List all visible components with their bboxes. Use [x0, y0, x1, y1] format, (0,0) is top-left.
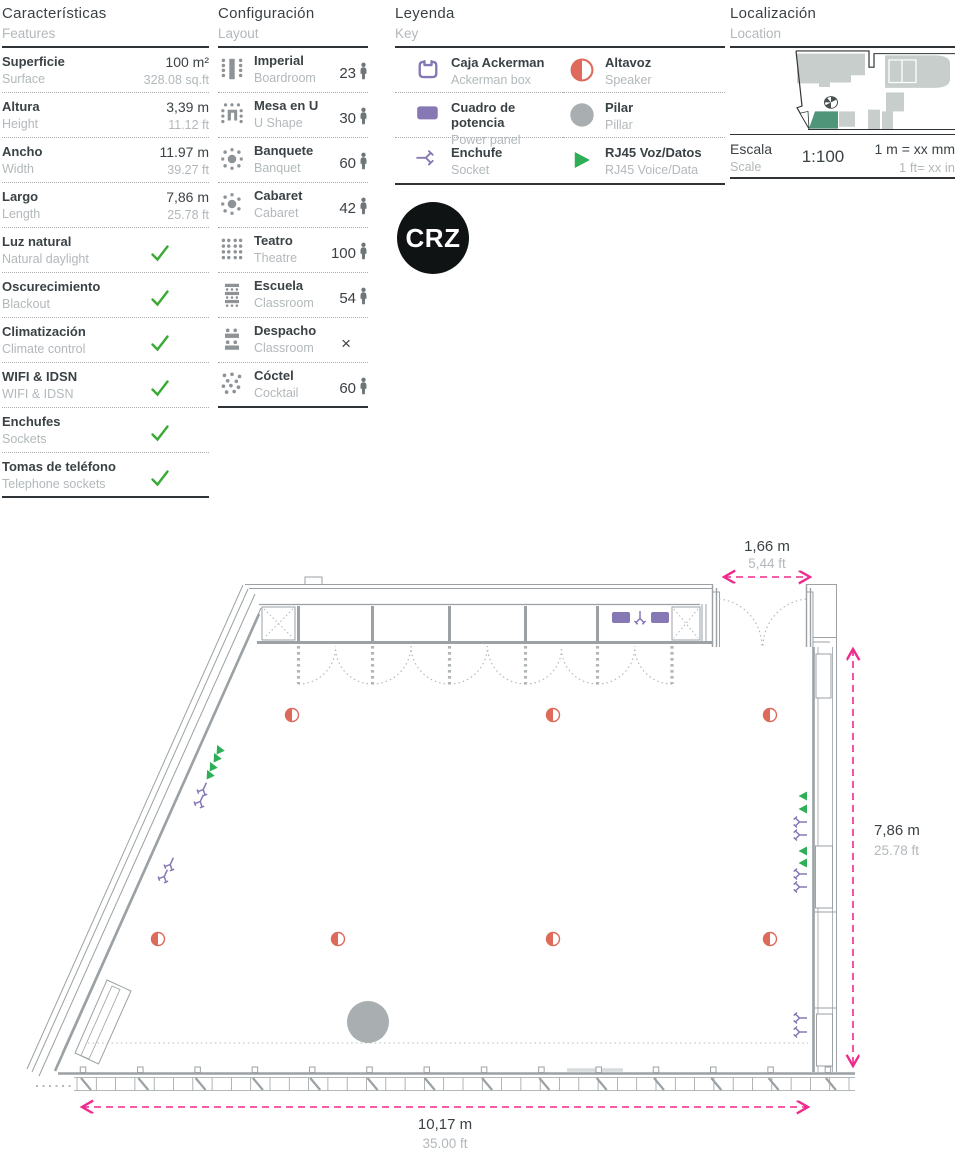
dim-top-ft: 5,44 ft [748, 556, 786, 571]
feature-row: AlturaHeight3,39 m11.12 ft [2, 93, 209, 138]
layout-sublabel: Cocktail [254, 386, 298, 400]
legend-sublabel: Speaker [605, 73, 652, 87]
layout-table: ImperialBoardroom23Mesa en UU Shape30Ban… [218, 48, 368, 408]
rj45-icon [569, 147, 595, 173]
scale-metric: 1 m = xx mm [874, 141, 955, 157]
capacity-value: 30 [339, 110, 356, 127]
capacity-value: 100 [331, 245, 356, 262]
feature-value: 7,86 m [166, 189, 209, 205]
feature-label: Oscurecimiento [2, 279, 100, 294]
cabaret-layout-icon [218, 190, 246, 218]
crz-logo: CRZ [397, 202, 469, 274]
feature-row: LargoLength7,86 m25.78 ft [2, 183, 209, 228]
theatre-layout-icon [218, 235, 246, 263]
socket-symbol [794, 817, 807, 828]
features-table: SuperficieSurface100 m²328.08 sq.ftAltur… [2, 48, 209, 498]
power-panel-symbol [651, 612, 669, 623]
feature-sublabel: Natural daylight [2, 252, 89, 266]
check-icon [149, 459, 209, 496]
layout-subtitle: Layout [218, 26, 368, 41]
ushape-layout-icon [218, 100, 246, 128]
socket-symbol [794, 1013, 807, 1024]
speaker-symbol [547, 709, 560, 722]
feature-label: Luz natural [2, 234, 89, 249]
plan-symbols [152, 611, 808, 1043]
speaker-symbol [286, 709, 299, 722]
power-panel-icon [415, 102, 441, 128]
socket-symbol [196, 780, 212, 797]
person-icon [359, 152, 368, 175]
feature-row: AnchoWidth11.97 m39.27 ft [2, 138, 209, 183]
layout-label: Banquete [254, 143, 313, 158]
layout-row: EscuelaClassroom54 [218, 273, 368, 318]
capacity-value: 60 [339, 380, 356, 397]
dim-bottom-m: 10,17 m [418, 1116, 472, 1133]
partition-swing-arcs [299, 646, 673, 684]
power-panel-symbol [612, 612, 630, 623]
feature-row: Luz naturalNatural daylight [2, 228, 209, 273]
layout-label: Despacho [254, 323, 316, 338]
scale-row: Escala Scale 1:100 1 m = xx mm 1 ft= xx … [730, 135, 955, 179]
feature-sublabel: Height [2, 117, 40, 131]
cocktail-layout-icon [218, 370, 246, 398]
socket-symbol [157, 867, 173, 884]
pillar-symbol [347, 1001, 389, 1043]
legend-label: Pilar [605, 100, 633, 115]
ackerman-box-icon [415, 57, 441, 83]
layout-label: Mesa en U [254, 98, 318, 113]
scale-label: Escala [730, 141, 792, 157]
layout-label: Cóctel [254, 368, 298, 383]
dimension-lines [82, 577, 853, 1107]
legend-sublabel: Socket [451, 163, 502, 177]
layout-sublabel: Classroom [254, 341, 316, 355]
legend-panel: Leyenda Key Caja AckermanAckerman boxCua… [395, 2, 725, 185]
layout-panel: Configuración Layout ImperialBoardroom23… [218, 2, 368, 408]
minimap-highlighted-room [809, 111, 838, 128]
legend-row: Caja AckermanAckerman box [395, 48, 563, 93]
scale-sublabel: Scale [730, 160, 792, 174]
layout-row: ImperialBoardroom23 [218, 48, 368, 93]
rj45-outlet-symbol [206, 760, 218, 772]
feature-row: EnchufesSockets [2, 408, 209, 453]
feature-label: Superficie [2, 54, 65, 69]
check-icon [149, 369, 209, 407]
layout-row: CabaretCabaret42 [218, 183, 368, 228]
rj45-outlet-symbol [799, 792, 808, 801]
check-icon [149, 279, 209, 317]
feature-subvalue: 11.12 ft [166, 118, 209, 132]
feature-sublabel: Surface [2, 72, 65, 86]
socket-symbol [794, 830, 807, 841]
capacity-value: 42 [339, 200, 356, 217]
layout-sublabel: Cabaret [254, 206, 302, 220]
person-icon [359, 377, 368, 400]
features-panel: Características Features SuperficieSurfa… [2, 2, 209, 498]
legend-column: AltavozSpeakerPilarPillarRJ45 Voz/DatosR… [563, 48, 725, 183]
check-icon [149, 234, 209, 272]
layout-label: Imperial [254, 53, 316, 68]
socket-symbol [635, 611, 646, 624]
dim-bottom-ft: 35.00 ft [422, 1136, 467, 1151]
feature-row: WIFI & IDSNWIFI & IDSN [2, 363, 209, 408]
capacity-value: 23 [339, 65, 356, 82]
imperial-layout-icon [218, 55, 246, 83]
dim-top-m: 1,66 m [744, 538, 790, 555]
feature-label: WIFI & IDSN [2, 369, 77, 384]
legend-label: Altavoz [605, 55, 652, 70]
capacity-value: 54 [339, 290, 356, 307]
legend-sublabel: RJ45 Voice/Data [605, 163, 702, 177]
layout-sublabel: Banquet [254, 161, 313, 175]
feature-row: OscurecimientoBlackout [2, 273, 209, 318]
rj45-outlet-symbol [799, 805, 808, 814]
legend-title: Leyenda [395, 2, 725, 22]
floor-plan-svg: 1,66 m 5,44 ft 7,86 m 25.78 ft 10,17 m 3… [0, 516, 964, 1161]
legend-row: RJ45 Voz/DatosRJ45 Voice/Data [563, 138, 725, 183]
feature-label: Tomas de teléfono [2, 459, 116, 474]
legend-sublabel: Pillar [605, 118, 633, 132]
feature-sublabel: Length [2, 207, 40, 221]
dim-right-ft: 25.78 ft [874, 843, 919, 858]
stairs-icon [824, 97, 837, 109]
features-subtitle: Features [2, 26, 209, 41]
floor-plan: 1,66 m 5,44 ft 7,86 m 25.78 ft 10,17 m 3… [0, 516, 964, 1166]
speaker-symbol [547, 933, 560, 946]
legend-subtitle: Key [395, 26, 725, 41]
capacity-value: 60 [339, 155, 356, 172]
dimension-labels: 1,66 m 5,44 ft 7,86 m 25.78 ft 10,17 m 3… [418, 538, 920, 1151]
socket-icon [415, 147, 441, 173]
feature-label: Enchufes [2, 414, 61, 429]
feature-row: SuperficieSurface100 m²328.08 sq.ft [2, 48, 209, 93]
office-layout-icon [218, 325, 246, 353]
rj45-outlet-symbol [213, 743, 225, 755]
socket-symbol [794, 1027, 807, 1038]
divider [730, 46, 955, 48]
socket-symbol [163, 855, 179, 872]
speaker-symbol [152, 933, 165, 946]
layout-sublabel: Boardroom [254, 71, 316, 85]
layout-row: BanqueteBanquet60 [218, 138, 368, 183]
feature-subvalue: 39.27 ft [159, 163, 209, 177]
entry-door-swing-arcs [719, 599, 806, 647]
layout-sublabel: U Shape [254, 116, 318, 130]
feature-label: Altura [2, 99, 40, 114]
location-title: Localización [730, 2, 955, 22]
scale-value: 1:100 [792, 147, 854, 167]
speaker-symbol [332, 933, 345, 946]
banquet-layout-icon [218, 145, 246, 173]
socket-symbol [794, 869, 807, 880]
divider [395, 183, 725, 185]
feature-sublabel: Telephone sockets [2, 477, 116, 491]
legend-label: RJ45 Voz/Datos [605, 145, 702, 160]
feature-label: Largo [2, 189, 40, 204]
speaker-icon [569, 57, 595, 83]
legend-row: AltavozSpeaker [563, 48, 725, 93]
person-icon [359, 242, 368, 265]
feature-row: Tomas de teléfonoTelephone sockets [2, 453, 209, 498]
layout-row: DespachoClassroom× [218, 318, 368, 363]
feature-sublabel: Width [2, 162, 42, 176]
person-icon [359, 287, 368, 310]
person-icon [359, 107, 368, 130]
layout-row: Mesa en UU Shape30 [218, 93, 368, 138]
legend-row: Cuadro de potenciaPower panel [395, 93, 563, 138]
person-icon [359, 62, 368, 85]
feature-subvalue: 25.78 ft [166, 208, 209, 222]
folding-partitions [299, 646, 673, 684]
layout-sublabel: Classroom [254, 296, 314, 310]
dim-right-m: 7,86 m [874, 822, 920, 839]
walls [27, 577, 855, 1091]
pillar-icon [569, 102, 595, 128]
legend-row: PilarPillar [563, 93, 725, 138]
check-icon [149, 414, 209, 452]
person-icon [359, 197, 368, 220]
legend-label: Enchufe [451, 145, 502, 160]
speaker-symbol [764, 709, 777, 722]
socket-symbol [794, 882, 807, 893]
legend-table: Caja AckermanAckerman boxCuadro de poten… [395, 48, 725, 183]
location-panel: Localización Location [730, 2, 955, 179]
rj45-outlet-symbol [799, 859, 808, 868]
legend-column: Caja AckermanAckerman boxCuadro de poten… [395, 48, 563, 183]
check-icon [149, 324, 209, 362]
facade-mullions [77, 1067, 849, 1091]
school-layout-icon [218, 280, 246, 308]
feature-value: 100 m² [144, 54, 209, 70]
scale-imperial: 1 ft= xx in [874, 160, 955, 175]
feature-label: Climatización [2, 324, 86, 339]
legend-label: Caja Ackerman [451, 55, 544, 70]
rj45-outlet-symbol [799, 847, 808, 856]
feature-value: 3,39 m [166, 99, 209, 115]
legend-sublabel: Ackerman box [451, 73, 544, 87]
feature-row: ClimatizaciónClimate control [2, 318, 209, 363]
feature-label: Ancho [2, 144, 42, 159]
location-subtitle: Location [730, 26, 955, 41]
layout-row: CóctelCocktail60 [218, 363, 368, 408]
speaker-symbol [764, 933, 777, 946]
feature-sublabel: Climate control [2, 342, 86, 356]
legend-label: Cuadro de potencia [451, 100, 563, 130]
layout-label: Cabaret [254, 188, 302, 203]
layout-label: Escuela [254, 278, 314, 293]
layout-sublabel: Theatre [254, 251, 297, 265]
layout-label: Teatro [254, 233, 297, 248]
layout-row: TeatroTheatre100 [218, 228, 368, 273]
feature-sublabel: Sockets [2, 432, 61, 446]
not-available-mark: × [341, 334, 356, 354]
layout-title: Configuración [218, 2, 368, 22]
feature-sublabel: Blackout [2, 297, 100, 311]
features-title: Características [2, 2, 209, 22]
feature-subvalue: 328.08 sq.ft [144, 73, 209, 87]
feature-value: 11.97 m [159, 144, 209, 160]
feature-sublabel: WIFI & IDSN [2, 387, 77, 401]
location-minimap [730, 50, 955, 134]
